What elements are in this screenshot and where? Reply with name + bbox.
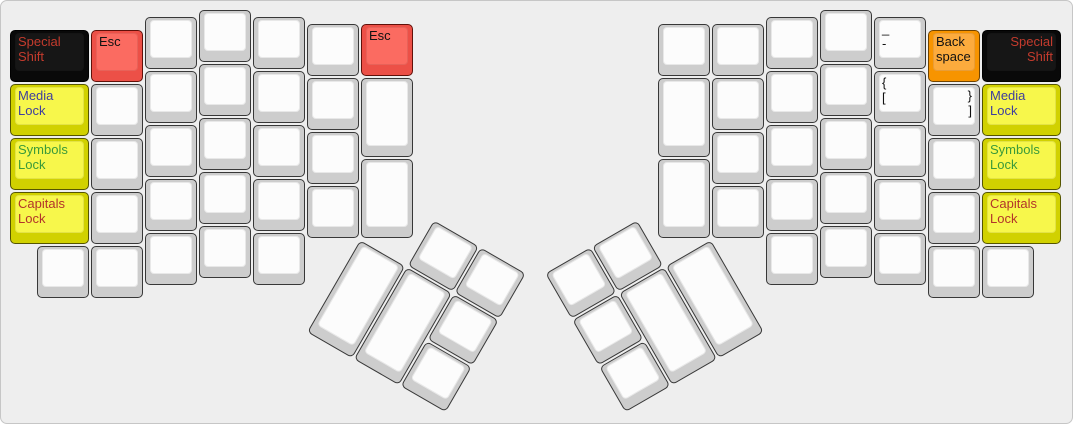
keycap-top [598,225,653,279]
keyboard-canvas: SpecialShiftMediaLockSymbolsLockCapitals… [0,0,1073,424]
keycap-top [551,252,606,306]
